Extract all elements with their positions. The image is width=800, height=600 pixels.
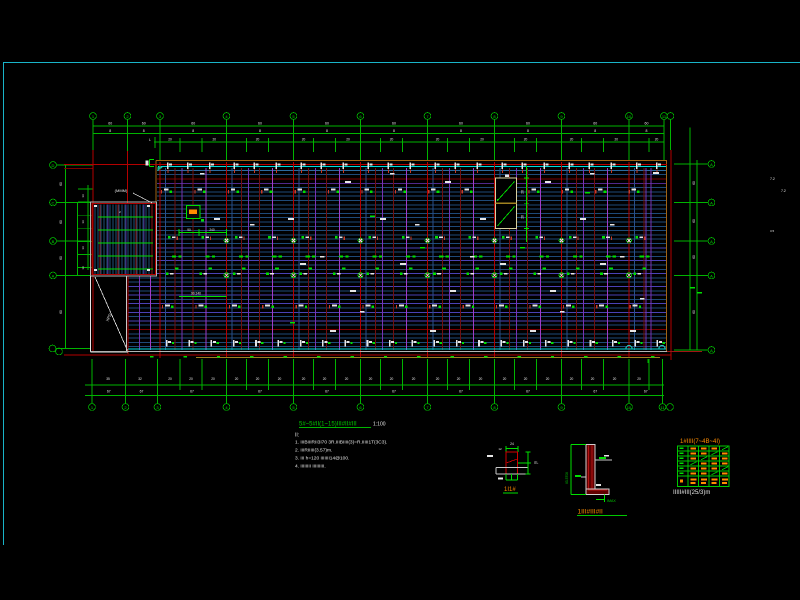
svg-text:20: 20 <box>345 377 349 381</box>
svg-text:II:: II: <box>295 433 299 439</box>
svg-text:60: 60 <box>59 220 63 224</box>
svg-text:20: 20 <box>168 377 172 381</box>
svg-text:20: 20 <box>212 138 216 142</box>
svg-text:60: 60 <box>692 181 696 185</box>
svg-text:A: A <box>710 162 713 167</box>
svg-text:3. III h=120 IIIIIII14@100.: 3. III h=120 IIIIIII14@100. <box>295 456 349 462</box>
svg-text:20: 20 <box>235 377 239 381</box>
svg-text:20: 20 <box>168 138 172 142</box>
svg-text:20: 20 <box>546 377 550 381</box>
svg-text:28: 28 <box>521 215 525 219</box>
svg-text:20: 20 <box>436 377 440 381</box>
svg-text:60: 60 <box>59 310 63 314</box>
svg-text:60: 60 <box>392 122 396 126</box>
svg-text:20: 20 <box>503 377 507 381</box>
svg-text:20: 20 <box>346 138 350 142</box>
svg-text:20: 20 <box>436 138 440 142</box>
svg-text:D: D <box>52 163 55 168</box>
svg-text:20: 20 <box>614 138 618 142</box>
svg-text:20: 20 <box>457 377 461 381</box>
svg-text:24: 24 <box>510 442 514 446</box>
svg-text:20: 20 <box>302 138 306 142</box>
svg-text:8: 8 <box>594 129 596 133</box>
svg-text:20: 20 <box>570 377 574 381</box>
svg-text:28: 28 <box>521 190 525 194</box>
svg-text:8: 8 <box>527 129 529 133</box>
svg-text:32: 32 <box>138 377 142 381</box>
svg-text:60: 60 <box>258 122 262 126</box>
svg-text:67: 67 <box>140 390 144 394</box>
svg-text:1. IIIBIIIRII3I70 3R.IIIBIIII(: 1. IIIBIIIRII3I70 3R.IIIBIIII(3)=R.IIIII… <box>295 440 387 446</box>
svg-text:20: 20 <box>637 377 641 381</box>
svg-text:20: 20 <box>278 377 282 381</box>
svg-text:60: 60 <box>692 310 696 314</box>
svg-text:B: B <box>52 239 55 244</box>
svg-text:7.2: 7.2 <box>770 177 775 181</box>
svg-text:1#IIII(7~4B~4I): 1#IIII(7~4B~4I) <box>680 439 720 445</box>
svg-text:8: 8 <box>192 129 194 133</box>
svg-text:20: 20 <box>655 138 659 142</box>
svg-text:20: 20 <box>302 377 306 381</box>
svg-text:8: 8 <box>143 129 145 133</box>
svg-text:20: 20 <box>412 377 416 381</box>
svg-text:IMAX: IMAX <box>607 499 616 503</box>
svg-text:60: 60 <box>142 122 146 126</box>
svg-text:2. IIIRIIIII(3.57)m.: 2. IIIRIIIII(3.57)m. <box>295 448 332 454</box>
svg-text:20: 20 <box>613 377 617 381</box>
svg-text:60: 60 <box>526 122 530 126</box>
svg-text:II3.570II: II3.570II <box>565 472 569 484</box>
svg-text:8: 8 <box>460 129 462 133</box>
svg-text:1III#III#II: 1III#III#II <box>578 509 603 516</box>
svg-text:67: 67 <box>258 390 262 394</box>
svg-text:A: A <box>710 201 713 206</box>
svg-text:60: 60 <box>593 122 597 126</box>
svg-text:A: A <box>710 239 713 244</box>
svg-text:ITL: ITL <box>534 461 539 465</box>
svg-text:8: 8 <box>109 129 111 133</box>
svg-text:20: 20 <box>189 377 193 381</box>
svg-text:13: 13 <box>81 194 85 198</box>
svg-text:20: 20 <box>524 138 528 142</box>
svg-text:20: 20 <box>390 377 394 381</box>
svg-text:60: 60 <box>59 256 63 260</box>
svg-text:8: 8 <box>393 129 395 133</box>
svg-text:67: 67 <box>459 390 463 394</box>
svg-text:5#~5#II(1~15)III#II#III: 5#~5#II(1~15)III#II#III <box>299 422 357 428</box>
svg-text:13: 13 <box>81 246 85 250</box>
svg-text:67: 67 <box>190 390 194 394</box>
svg-text:60: 60 <box>59 182 63 186</box>
svg-text:13: 13 <box>81 220 85 224</box>
svg-text:90 240: 90 240 <box>191 292 201 296</box>
svg-text:20: 20 <box>591 377 595 381</box>
svg-text:A: A <box>710 274 713 279</box>
svg-text:10: 10 <box>627 405 632 410</box>
svg-text:67: 67 <box>107 390 111 394</box>
svg-text:60: 60 <box>191 122 195 126</box>
svg-text:A: A <box>710 348 713 353</box>
svg-text:60: 60 <box>692 255 696 259</box>
svg-text:60: 60 <box>645 122 649 126</box>
svg-text:20: 20 <box>256 138 260 142</box>
svg-text:IIIII#III(25/3)m: IIIII#III(25/3)m <box>673 490 710 496</box>
svg-text:67: 67 <box>593 390 597 394</box>
svg-text:20: 20 <box>369 377 373 381</box>
svg-text:60: 60 <box>108 122 112 126</box>
svg-text:67: 67 <box>325 390 329 394</box>
svg-text:20: 20 <box>479 377 483 381</box>
svg-text:10: 10 <box>627 114 632 119</box>
svg-text:20: 20 <box>256 377 260 381</box>
svg-text:A: A <box>52 274 55 279</box>
svg-text:20: 20 <box>570 138 574 142</box>
svg-text:C: C <box>52 201 55 206</box>
svg-text:67: 67 <box>526 390 530 394</box>
svg-text:(MMM): (MMM) <box>115 188 128 193</box>
svg-text:7.2: 7.2 <box>781 189 786 193</box>
svg-text:20: 20 <box>211 377 215 381</box>
svg-text:13: 13 <box>81 266 85 270</box>
svg-text:8: 8 <box>646 129 648 133</box>
svg-text:8: 8 <box>326 129 328 133</box>
svg-text:90: 90 <box>187 228 191 232</box>
svg-text:60: 60 <box>325 122 329 126</box>
svg-text:35: 35 <box>106 377 110 381</box>
svg-text:8: 8 <box>259 129 261 133</box>
svg-text:240: 240 <box>209 228 215 232</box>
svg-text:20: 20 <box>524 377 528 381</box>
svg-text:60: 60 <box>459 122 463 126</box>
svg-text:3.5: 3.5 <box>770 229 775 233</box>
svg-text:67: 67 <box>392 390 396 394</box>
svg-text:67: 67 <box>644 390 648 394</box>
svg-text:12: 12 <box>498 447 502 451</box>
svg-text:4. IIIIIIII IIIIIIIII.: 4. IIIIIIII IIIIIIIII. <box>295 464 326 470</box>
svg-text:60: 60 <box>692 219 696 223</box>
svg-text:L: L <box>149 138 151 142</box>
svg-text:20: 20 <box>480 138 484 142</box>
svg-text:1I1#: 1I1# <box>504 487 516 493</box>
svg-text:20: 20 <box>390 138 394 142</box>
svg-text:20: 20 <box>323 377 327 381</box>
svg-text:1:100: 1:100 <box>373 422 386 428</box>
